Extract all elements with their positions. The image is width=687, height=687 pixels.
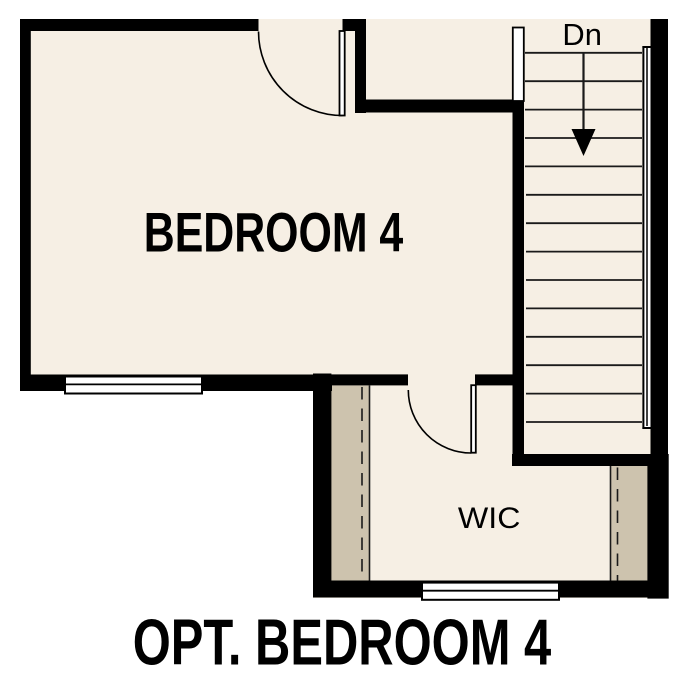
svg-text:Dn: Dn [562,17,602,52]
svg-text:WIC: WIC [458,502,521,535]
svg-text:BEDROOM 4: BEDROOM 4 [144,201,404,264]
svg-text:OPT. BEDROOM 4: OPT. BEDROOM 4 [133,606,552,679]
